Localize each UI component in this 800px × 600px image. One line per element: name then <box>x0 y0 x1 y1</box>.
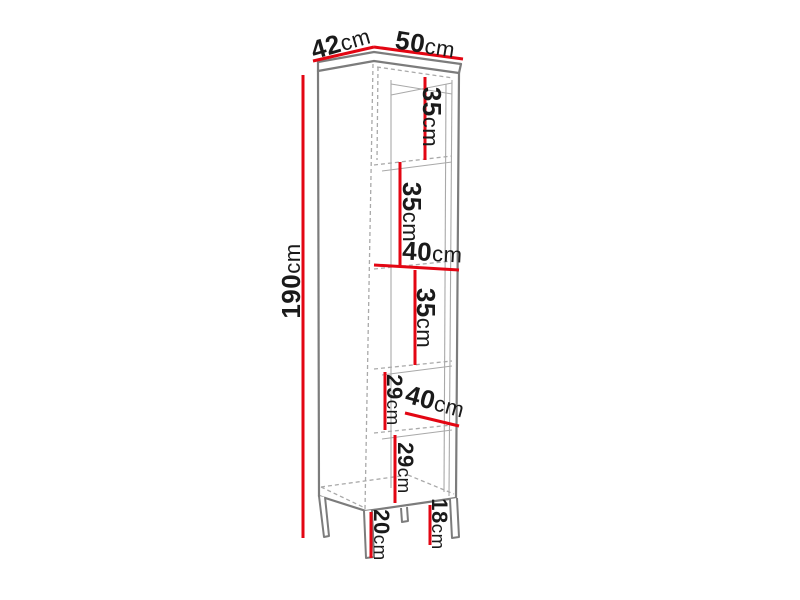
leg-middle <box>401 507 408 522</box>
opening-left-edge <box>365 64 373 509</box>
compartment-1-label: 35cm <box>417 87 447 147</box>
width-label: 50cm <box>393 25 457 64</box>
back-left-edge <box>318 71 319 496</box>
inner-right-edge <box>449 80 452 496</box>
shelf-4-front-edge <box>382 430 452 439</box>
compartment-4-label: 29cm <box>382 374 407 425</box>
diagram-canvas: 42cm 50cm 190cm 35cm 35cm 40cm 35cm 29cm… <box>0 0 800 600</box>
leg-front-height-label: 20cm <box>369 509 394 560</box>
compartment-5-label: 29cm <box>393 442 418 493</box>
right-edge <box>456 73 459 498</box>
compartment-2-label: 35cm <box>397 182 427 242</box>
leg-back-height-label: 18cm <box>427 498 452 549</box>
opening-left-edge-inner <box>377 67 378 160</box>
interior-top-edge <box>377 67 453 78</box>
compartment-3-label: 35cm <box>411 288 441 348</box>
lower-width-label: 40cm <box>402 379 468 424</box>
leg-back-left <box>319 496 329 537</box>
top-slab-lower-edge <box>318 61 459 73</box>
shelf-1-front-edge <box>382 162 452 171</box>
furniture-dimension-diagram: 42cm 50cm 190cm 35cm 35cm 40cm 35cm 29cm… <box>0 0 800 600</box>
height-label: 190cm <box>276 243 306 318</box>
bottom-back-left-edge <box>321 487 365 508</box>
shelf-width-label: 40cm <box>402 235 464 268</box>
top-slab-right-cap <box>459 64 461 73</box>
